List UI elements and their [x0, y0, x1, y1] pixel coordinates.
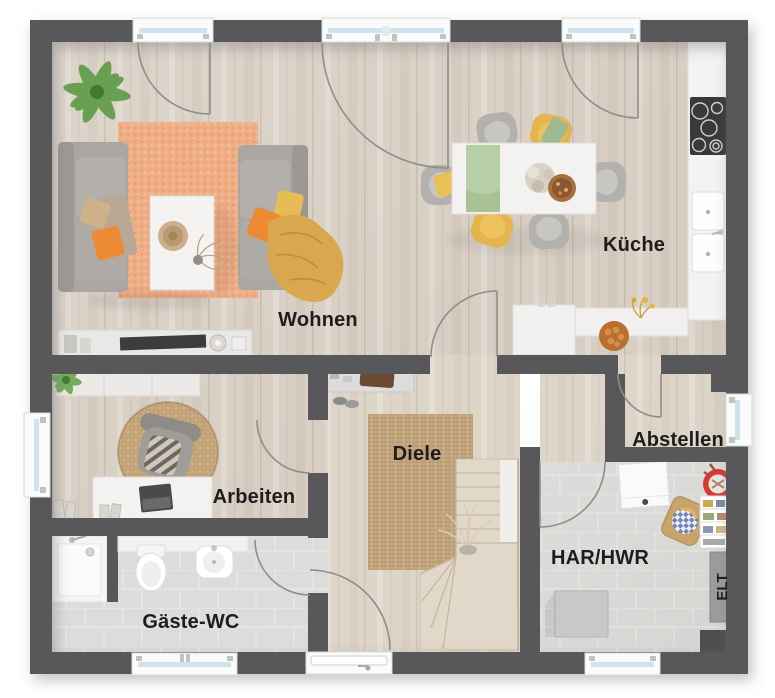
shower-partition-wall: [107, 536, 118, 602]
fruit-bowl: [599, 321, 629, 351]
dining-table: [452, 143, 596, 214]
wc-sink: [196, 545, 233, 578]
window: [562, 18, 640, 42]
room-label-diele: Diele: [393, 443, 442, 465]
room-label-abstellen: Abstellen: [632, 429, 724, 451]
kitchen-cabinet: [513, 305, 575, 355]
kitchen-counter: [688, 42, 726, 320]
floor-plan-page: Wohnen Küche Arbeiten Diele Abstellen Gä…: [0, 0, 775, 698]
gray-box: [555, 591, 608, 637]
sofa-left: [58, 142, 138, 292]
room-label-wohnen: Wohnen: [278, 309, 358, 331]
window: [726, 394, 752, 446]
shoe: [345, 400, 359, 408]
laptop: [139, 483, 174, 512]
room-label-arbeiten: Arbeiten: [213, 486, 296, 508]
window: [133, 18, 213, 42]
entrance-door: [306, 652, 392, 674]
stair-stringer: [500, 460, 518, 542]
room-label-har-hwr: HAR/HWR: [551, 547, 649, 569]
window: [585, 653, 660, 675]
room-label-kueche: Küche: [603, 234, 665, 256]
floor-plan: Wohnen Küche Arbeiten Diele Abstellen Gä…: [0, 0, 775, 698]
room-label-elt: ELT: [714, 573, 731, 600]
window: [24, 413, 50, 497]
shoe: [333, 397, 347, 405]
room-label-gaeste-wc: Gäste-WC: [142, 611, 239, 633]
toilet: [136, 545, 166, 591]
shower: [52, 536, 107, 602]
wall-niche: [700, 630, 726, 652]
window: [322, 18, 450, 42]
washing-machine: [619, 461, 670, 508]
coffee-table: [150, 196, 236, 294]
window: [132, 653, 237, 675]
cooktop: [690, 97, 726, 155]
